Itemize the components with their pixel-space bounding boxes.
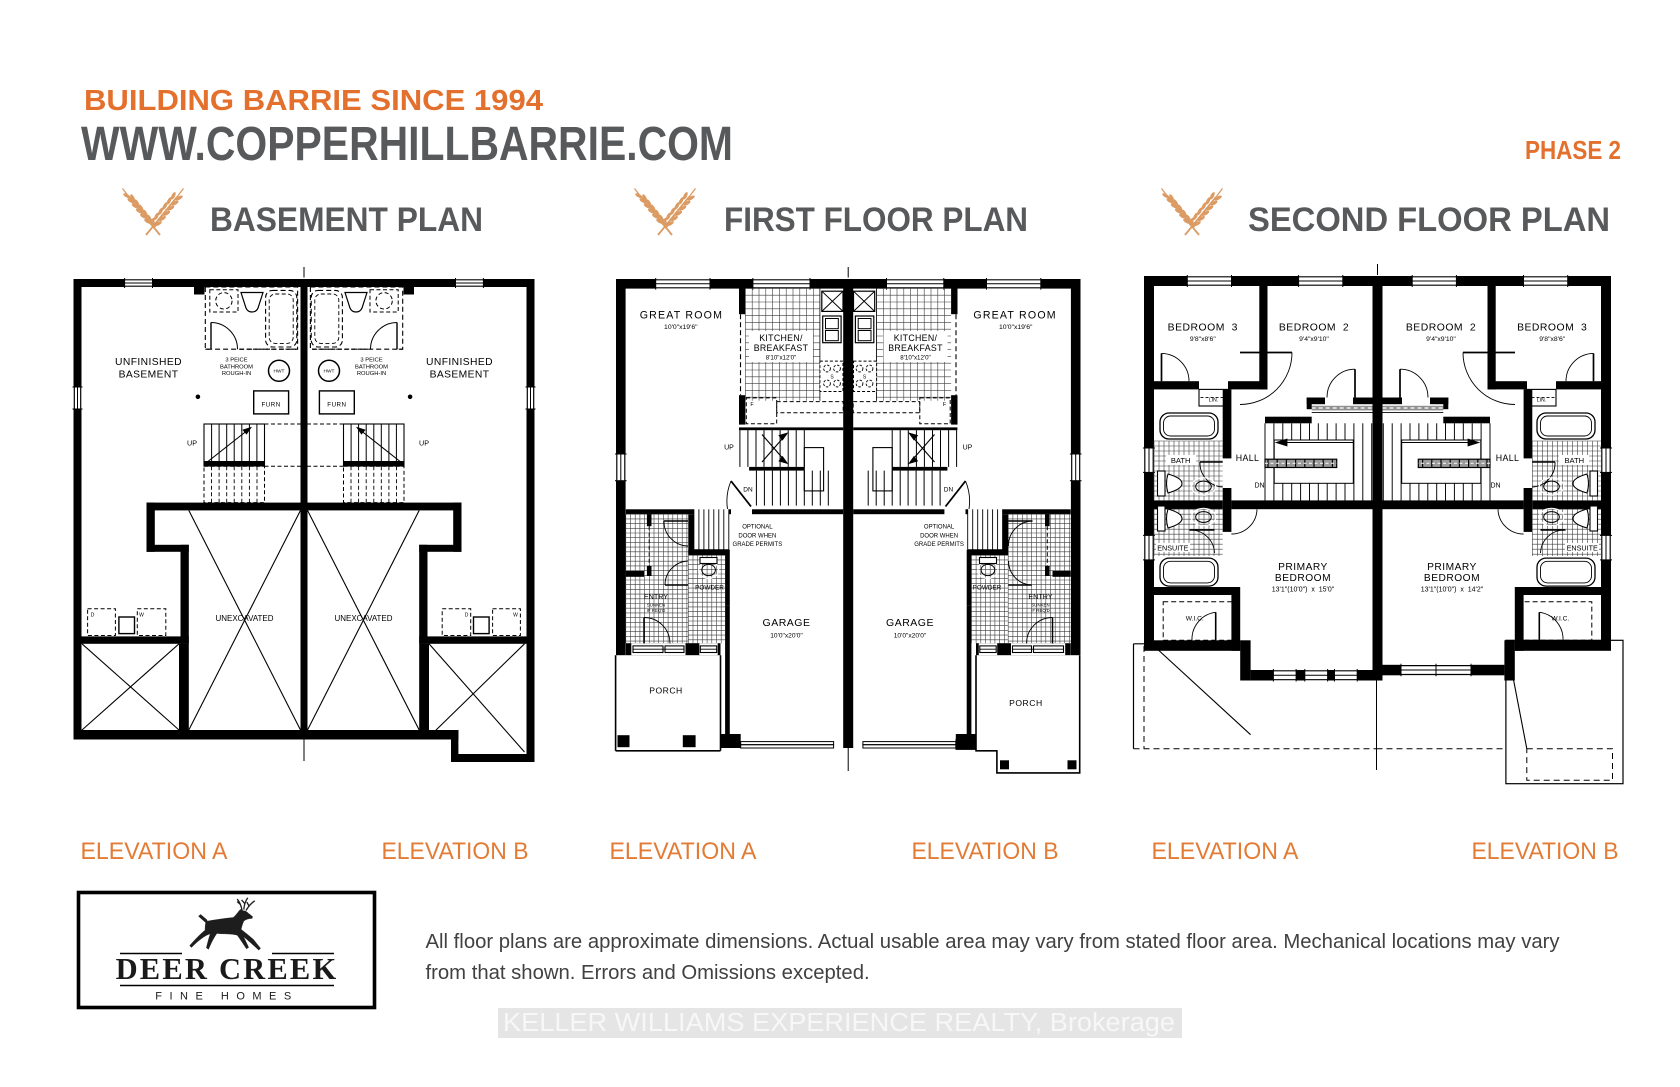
svg-text:ELEVATION A: ELEVATION A (610, 838, 758, 865)
svg-text:SUNKEN: SUNKEN (1031, 603, 1049, 608)
svg-text:BUILDING BARRIE SINCE 1994: BUILDING BARRIE SINCE 1994 (84, 85, 543, 117)
svg-text:DN: DN (1254, 483, 1264, 490)
svg-text:BASEMENT: BASEMENT (430, 370, 490, 381)
svg-text:IF REQ'D: IF REQ'D (1031, 608, 1050, 613)
svg-text:13'1"(10'0") x 14'2": 13'1"(10'0") x 14'2" (1421, 587, 1484, 594)
svg-text:UNEXCAVATED: UNEXCAVATED (216, 613, 274, 623)
svg-text:9'4"x9'10": 9'4"x9'10" (1426, 336, 1456, 343)
svg-text:KELLER WILLIAMS EXPERIENCE REA: KELLER WILLIAMS EXPERIENCE REALTY, Broke… (503, 1009, 1175, 1037)
svg-text:DOOR WHEN: DOOR WHEN (738, 533, 776, 539)
svg-text:DN: DN (944, 487, 954, 494)
svg-text:3 PEICE: 3 PEICE (225, 358, 247, 364)
svg-text:BEDROOM 3: BEDROOM 3 (1517, 323, 1587, 334)
svg-text:BEDROOM: BEDROOM (1275, 573, 1331, 584)
svg-text:9'4"x9'10": 9'4"x9'10" (1299, 336, 1329, 343)
svg-text:UP: UP (963, 445, 973, 452)
svg-text:PHASE 2: PHASE 2 (1525, 135, 1621, 165)
svg-text:BREAKFAST: BREAKFAST (754, 343, 809, 353)
svg-text:HWT: HWT (324, 369, 335, 375)
svg-text:POWDER: POWDER (695, 585, 724, 592)
svg-text:UNEXCAVATED: UNEXCAVATED (335, 613, 393, 623)
svg-text:BATHROOM: BATHROOM (220, 364, 253, 370)
svg-text:ELEVATION B: ELEVATION B (1472, 838, 1619, 865)
svg-text:GARAGE: GARAGE (886, 617, 934, 629)
svg-text:13'1"(10'0") x 15'0": 13'1"(10'0") x 15'0" (1272, 587, 1335, 594)
svg-text:PRIMARY: PRIMARY (1427, 562, 1477, 573)
svg-text:UNFINISHED: UNFINISHED (426, 357, 493, 368)
svg-text:BEDROOM 3: BEDROOM 3 (1168, 323, 1238, 334)
svg-text:OPTIONAL: OPTIONAL (924, 525, 955, 531)
svg-text:FIRST FLOOR PLAN: FIRST FLOOR PLAN (724, 201, 1028, 239)
svg-text:BASEMENT PLAN: BASEMENT PLAN (210, 201, 483, 239)
svg-text:ELEVATION A: ELEVATION A (1152, 838, 1300, 865)
svg-text:DN: DN (1490, 483, 1500, 490)
svg-text:ENSUITE: ENSUITE (1567, 544, 1598, 553)
svg-text:HALL: HALL (1236, 453, 1260, 463)
svg-text:PRIMARY: PRIMARY (1278, 562, 1328, 573)
svg-text:8'10"x12'0": 8'10"x12'0" (900, 355, 931, 362)
svg-text:PORCH: PORCH (649, 686, 683, 696)
svg-text:IF REQ'D: IF REQ'D (647, 608, 666, 613)
svg-text:LIN.: LIN. (1537, 398, 1547, 404)
svg-text:BATHROOM: BATHROOM (355, 364, 388, 370)
svg-text:9'8"x8'6": 9'8"x8'6" (1539, 336, 1566, 343)
svg-text:ELEVATION A: ELEVATION A (81, 838, 229, 865)
svg-text:ENSUITE: ENSUITE (1157, 544, 1188, 553)
svg-text:FURN: FURN (327, 402, 346, 409)
svg-text:FURN: FURN (262, 402, 281, 409)
svg-text:BREAKFAST: BREAKFAST (888, 343, 943, 353)
svg-text:DEER CREEK: DEER CREEK (116, 952, 339, 986)
svg-text:from that shown. Errors and Om: from that shown. Errors and Omissions ex… (426, 962, 870, 984)
svg-text:SECOND FLOOR PLAN: SECOND FLOOR PLAN (1248, 201, 1610, 239)
svg-text:D: D (91, 613, 95, 619)
svg-text:GRADE PERMITS: GRADE PERMITS (733, 542, 783, 548)
svg-text:GARAGE: GARAGE (763, 617, 811, 629)
svg-text:WWW.COPPERHILLBARRIE.COM: WWW.COPPERHILLBARRIE.COM (81, 117, 733, 171)
svg-text:GREAT ROOM: GREAT ROOM (640, 310, 723, 322)
svg-text:9'8"x8'6": 9'8"x8'6" (1190, 336, 1217, 343)
svg-text:10'0"x19'6": 10'0"x19'6" (664, 324, 698, 331)
svg-text:BATH: BATH (1564, 456, 1584, 465)
svg-text:UP: UP (187, 439, 197, 448)
svg-text:OPTIONAL: OPTIONAL (742, 525, 773, 531)
svg-text:HWT: HWT (274, 369, 285, 375)
svg-text:8'10"x12'0": 8'10"x12'0" (766, 355, 797, 362)
svg-text:ENTRY: ENTRY (644, 592, 668, 601)
svg-text:UP: UP (724, 445, 734, 452)
svg-text:KITCHEN/: KITCHEN/ (759, 333, 803, 343)
svg-text:ROUGH-IN: ROUGH-IN (222, 371, 251, 377)
svg-text:BEDROOM 2: BEDROOM 2 (1279, 323, 1349, 334)
svg-text:PORCH: PORCH (1009, 698, 1043, 708)
svg-text:W: W (139, 613, 144, 619)
svg-text:BATH: BATH (1171, 456, 1191, 465)
svg-text:3 PEICE: 3 PEICE (360, 358, 382, 364)
svg-text:DN: DN (743, 487, 753, 494)
svg-text:ELEVATION B: ELEVATION B (912, 838, 1059, 865)
svg-text:UNFINISHED: UNFINISHED (115, 357, 182, 368)
svg-text:GRADE PERMITS: GRADE PERMITS (914, 542, 964, 548)
svg-text:D: D (465, 613, 469, 619)
svg-text:UP: UP (419, 439, 429, 448)
svg-text:FINE HOMES: FINE HOMES (155, 991, 298, 1003)
svg-text:W: W (513, 613, 518, 619)
svg-text:BEDROOM 2: BEDROOM 2 (1406, 323, 1476, 334)
svg-text:10'0"x19'6": 10'0"x19'6" (999, 324, 1033, 331)
svg-text:KITCHEN/: KITCHEN/ (894, 333, 938, 343)
svg-text:BASEMENT: BASEMENT (119, 370, 179, 381)
svg-text:DOOR WHEN: DOOR WHEN (920, 533, 958, 539)
svg-text:10'0"x20'0": 10'0"x20'0" (894, 633, 927, 640)
svg-text:SUNKEN: SUNKEN (647, 603, 665, 608)
svg-text:POWDER: POWDER (973, 585, 1002, 592)
svg-text:LIN.: LIN. (1209, 398, 1219, 404)
svg-text:ENTRY: ENTRY (1028, 592, 1052, 601)
svg-text:ROUGH-IN: ROUGH-IN (357, 371, 386, 377)
svg-text:GREAT ROOM: GREAT ROOM (973, 310, 1056, 322)
svg-text:10'0"x20'0": 10'0"x20'0" (770, 633, 803, 640)
svg-text:BEDROOM: BEDROOM (1424, 573, 1480, 584)
svg-text:HALL: HALL (1496, 453, 1520, 463)
svg-text:ELEVATION B: ELEVATION B (382, 838, 529, 865)
svg-text:All floor plans are approximat: All floor plans are approximate dimensio… (426, 931, 1561, 953)
